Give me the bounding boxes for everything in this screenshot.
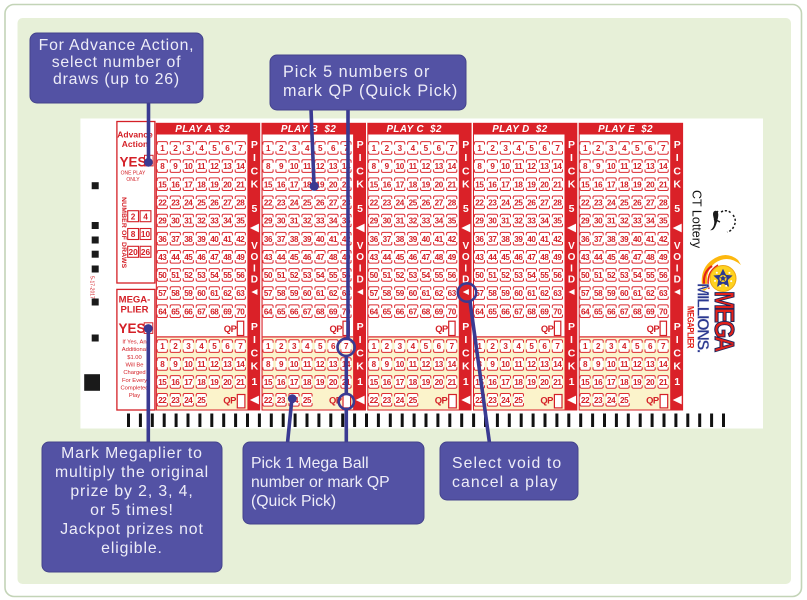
svg-text:V: V — [674, 241, 681, 252]
svg-text:I: I — [359, 334, 362, 346]
svg-text:PLAY C $2: PLAY C $2 — [387, 124, 443, 135]
svg-text:I: I — [253, 152, 256, 164]
svg-text:If Yes, An: If Yes, An — [122, 340, 146, 346]
svg-text:C: C — [462, 347, 470, 359]
svg-text:I: I — [676, 152, 679, 164]
svg-text:I: I — [464, 263, 467, 274]
svg-text:P: P — [674, 321, 681, 333]
svg-text:1: 1 — [251, 376, 257, 388]
svg-text:MEGAPLIER: MEGAPLIER — [686, 306, 696, 349]
svg-text:For Every: For Every — [122, 378, 147, 384]
svg-text:26: 26 — [141, 247, 151, 257]
svg-text:(Quick Pick): (Quick Pick) — [251, 493, 336, 510]
svg-text:2: 2 — [131, 211, 136, 221]
svg-text:C: C — [673, 347, 681, 359]
svg-text:O: O — [251, 252, 259, 263]
svg-text:cancel a play: cancel a play — [452, 474, 559, 491]
svg-text:eligible.: eligible. — [101, 540, 163, 557]
svg-text:P: P — [462, 139, 469, 151]
svg-text:C: C — [568, 165, 576, 177]
svg-text:prize by 2, 3, 4,: prize by 2, 3, 4, — [70, 483, 193, 500]
svg-text:YES: YES — [119, 321, 146, 336]
svg-text:V: V — [568, 241, 575, 252]
svg-text:I: I — [253, 334, 256, 346]
svg-text:P: P — [568, 139, 575, 151]
svg-text:PLAY B $2: PLAY B $2 — [281, 124, 337, 135]
svg-text:K: K — [568, 361, 576, 373]
svg-text:Select void to: Select void to — [452, 455, 562, 472]
svg-text:K: K — [462, 179, 470, 191]
svg-text:or 5 times!: or 5 times! — [90, 502, 174, 519]
svg-text:C: C — [251, 347, 259, 359]
svg-text:1: 1 — [674, 376, 680, 388]
svg-text:V: V — [462, 241, 469, 252]
svg-text:Will Be: Will Be — [125, 362, 143, 368]
svg-text:I: I — [359, 263, 362, 274]
svg-text:QP: QP — [330, 323, 343, 334]
svg-text:P: P — [462, 321, 469, 333]
svg-text:YES: YES — [120, 154, 147, 169]
svg-text:I: I — [570, 263, 573, 274]
svg-text:C: C — [462, 165, 470, 177]
svg-text:QP: QP — [435, 323, 448, 334]
svg-text:K: K — [462, 361, 470, 373]
svg-text:K: K — [673, 179, 681, 191]
svg-text:Charged: Charged — [123, 370, 145, 376]
svg-text:CT Lottery: CT Lottery — [690, 190, 704, 249]
svg-text:K: K — [356, 179, 364, 191]
svg-text:5: 5 — [674, 203, 680, 215]
svg-text:O: O — [356, 252, 364, 263]
svg-text:V: V — [251, 241, 258, 252]
svg-text:8: 8 — [131, 229, 136, 239]
svg-text:5: 5 — [569, 203, 575, 215]
svg-text:5: 5 — [357, 203, 363, 215]
svg-text:Completed: Completed — [120, 385, 148, 391]
svg-text:ONE PLAY: ONE PLAY — [121, 171, 146, 177]
svg-text:I: I — [676, 334, 679, 346]
svg-text:QP: QP — [435, 395, 448, 406]
svg-text:20: 20 — [128, 247, 138, 257]
svg-text:I: I — [676, 263, 679, 274]
svg-text:P: P — [251, 139, 258, 151]
svg-text:C: C — [251, 165, 259, 177]
svg-text:O: O — [462, 252, 470, 263]
svg-text:V: V — [357, 241, 364, 252]
svg-text:5: 5 — [463, 203, 469, 215]
svg-text:C: C — [356, 165, 364, 177]
svg-text:K: K — [673, 361, 681, 373]
svg-text:4: 4 — [143, 211, 148, 221]
svg-text:C: C — [673, 165, 681, 177]
svg-text:Pick 1 Mega Ball: Pick 1 Mega Ball — [251, 455, 369, 472]
svg-text:PLIER: PLIER — [121, 305, 149, 316]
svg-text:I: I — [464, 152, 467, 164]
svg-text:ONLY: ONLY — [126, 177, 140, 183]
svg-text:PLAY D $2: PLAY D $2 — [492, 124, 548, 135]
svg-text:QP: QP — [646, 395, 659, 406]
svg-text:$1.00: $1.00 — [127, 355, 142, 361]
svg-text:Pick 5 numbers or: Pick 5 numbers or — [283, 63, 430, 81]
svg-text:mark QP (Quick Pick): mark QP (Quick Pick) — [283, 82, 458, 100]
svg-text:QP: QP — [224, 323, 237, 334]
svg-text:QP: QP — [223, 395, 236, 406]
svg-text:QP: QP — [647, 323, 660, 334]
svg-text:Play: Play — [129, 393, 140, 399]
svg-text:I: I — [253, 263, 256, 274]
svg-text:D: D — [251, 275, 258, 286]
svg-text:O: O — [568, 252, 576, 263]
svg-text:1: 1 — [569, 376, 575, 388]
svg-text:number or mark QP: number or mark QP — [251, 474, 390, 491]
svg-text:5: 5 — [251, 203, 257, 215]
svg-text:D: D — [356, 275, 363, 286]
svg-text:O: O — [673, 252, 681, 263]
svg-text:P: P — [251, 321, 258, 333]
svg-text:QP: QP — [540, 395, 553, 406]
svg-text:Jackpot prizes not: Jackpot prizes not — [60, 521, 204, 538]
svg-text:Action: Action — [122, 139, 148, 149]
svg-text:1: 1 — [357, 376, 363, 388]
svg-text:PLAY E $2: PLAY E $2 — [598, 124, 653, 135]
svg-text:D: D — [674, 275, 681, 286]
svg-text:K: K — [568, 179, 576, 191]
svg-text:K: K — [356, 361, 364, 373]
svg-text:I: I — [359, 152, 362, 164]
svg-text:K: K — [251, 361, 259, 373]
svg-text:I: I — [464, 334, 467, 346]
svg-text:P: P — [357, 321, 364, 333]
svg-text:5-17-2017: 5-17-2017 — [89, 276, 95, 299]
svg-text:select number of: select number of — [52, 54, 182, 71]
svg-text:10: 10 — [141, 229, 151, 239]
svg-text:Additional: Additional — [122, 347, 147, 353]
svg-text:QP: QP — [541, 323, 554, 334]
svg-text:K: K — [251, 179, 259, 191]
svg-text:NUMBER OF DRAWS: NUMBER OF DRAWS — [120, 197, 127, 269]
svg-text:C: C — [356, 347, 364, 359]
svg-text:P: P — [674, 139, 681, 151]
svg-text:D: D — [568, 275, 575, 286]
svg-text:draws (up to 26): draws (up to 26) — [53, 71, 180, 88]
svg-text:Mark Megaplier to: Mark Megaplier to — [61, 445, 203, 462]
svg-text:1: 1 — [463, 376, 469, 388]
svg-text:P: P — [357, 139, 364, 151]
svg-text:I: I — [570, 334, 573, 346]
svg-text:For Advance Action,: For Advance Action, — [39, 37, 195, 54]
svg-text:MEGA: MEGA — [709, 291, 740, 352]
svg-text:multiply the original: multiply the original — [55, 464, 209, 481]
svg-text:P: P — [568, 321, 575, 333]
svg-text:C: C — [568, 347, 576, 359]
svg-text:PLAY A $2: PLAY A $2 — [175, 124, 230, 135]
svg-text:I: I — [570, 152, 573, 164]
